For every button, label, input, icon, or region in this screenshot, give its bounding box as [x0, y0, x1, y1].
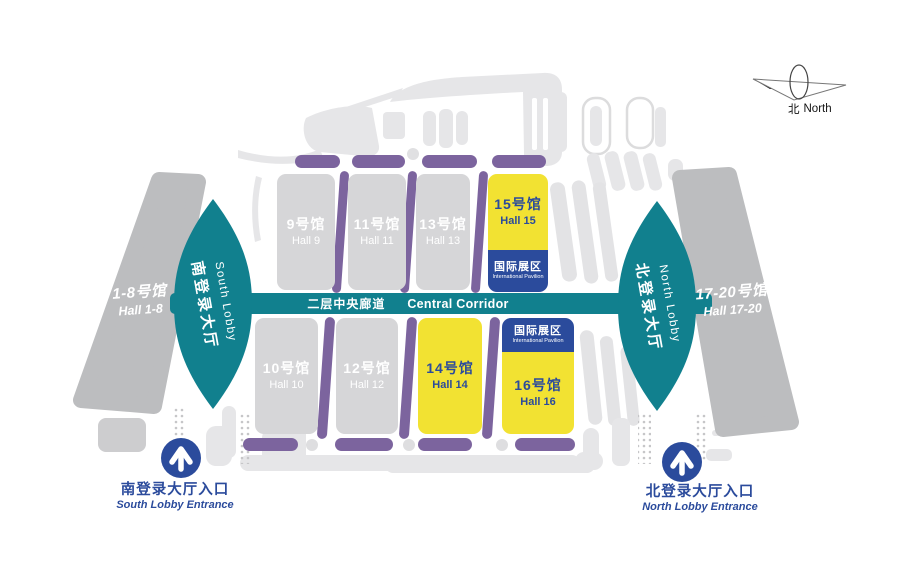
- loading-dock-pill: [243, 438, 298, 451]
- loading-dock-pill: [335, 438, 393, 451]
- international-pavilion-badge-hall15: 国际展区 International Pavilion: [488, 250, 548, 292]
- hall-9: 9号馆 Hall 9: [277, 174, 335, 290]
- hall-16: 16号馆 Hall 16: [502, 352, 574, 434]
- hall-10: 10号馆 Hall 10: [255, 318, 318, 434]
- loading-dock-pill: [418, 438, 472, 451]
- venue-map-canvas: 1-8号馆 Hall 1-8 17-20号馆 Hall 17-20 South …: [0, 0, 919, 579]
- loading-dock-pill: [295, 155, 340, 168]
- hall-14: 14号馆 Hall 14: [418, 318, 482, 434]
- hall-13: 13号馆 Hall 13: [416, 174, 470, 290]
- north-entrance-marker: [662, 442, 702, 482]
- central-corridor-label: 二层中央廊道 Central Corridor: [170, 293, 712, 314]
- south-lobby-entrance-label: 南登录大厅入口 South Lobby Entrance: [110, 482, 240, 513]
- hall-15: 15号馆 Hall 15: [488, 174, 548, 250]
- south-entrance-marker: [161, 438, 201, 478]
- hall-11: 11号馆 Hall 11: [348, 174, 406, 290]
- north-compass-icon: [753, 65, 846, 100]
- international-pavilion-badge-hall16: 国际展区 International Pavilion: [502, 318, 574, 352]
- loading-dock-pill: [492, 155, 546, 168]
- loading-dock-pill: [422, 155, 477, 168]
- loading-dock-pill: [352, 155, 405, 168]
- compass-label: 北 North: [788, 101, 832, 117]
- hall-12: 12号馆 Hall 12: [336, 318, 398, 434]
- loading-dock-pill: [515, 438, 575, 451]
- north-lobby-entrance-label: 北登录大厅入口 North Lobby Entrance: [630, 484, 770, 515]
